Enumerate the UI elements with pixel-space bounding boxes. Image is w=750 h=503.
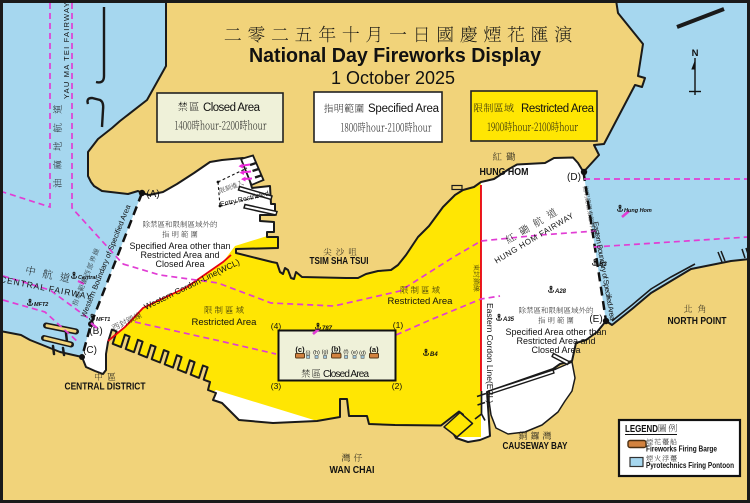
svg-text:Restricted Area: Restricted Area [521,103,595,115]
svg-text:(3): (3) [271,381,282,391]
svg-text:787: 787 [322,326,333,332]
svg-text:A35: A35 [502,317,515,323]
svg-text:(2): (2) [392,381,403,391]
svg-text:Pyrotechnics Firing Pontoon: Pyrotechnics Firing Pontoon [646,461,734,470]
svg-text:(h): (h) [313,350,320,356]
svg-text:MFT2: MFT2 [34,302,48,308]
svg-text:NORTH POINT: NORTH POINT [668,316,727,327]
svg-text:(E): (E) [589,314,602,325]
svg-text:B4: B4 [430,352,438,358]
svg-text:Fireworks Firing Barge: Fireworks Firing Barge [646,445,717,454]
svg-text:Restricted Area: Restricted Area [388,296,454,307]
svg-text:National Day Fireworks Display: National Day Fireworks Display [249,45,542,67]
svg-text:YAU MA TEI FAIRWAY: YAU MA TEI FAIRWAY [62,1,71,99]
svg-text:Closed Area: Closed Area [531,345,580,355]
svg-text:(e): (e) [351,350,358,356]
svg-text:(D): (D) [567,172,581,183]
svg-text:CENTRAL DISTRICT: CENTRAL DISTRICT [65,382,146,393]
svg-text:Closed Area: Closed Area [323,369,369,380]
svg-text:N: N [692,48,699,59]
svg-text:WAN CHAI: WAN CHAI [330,465,375,476]
svg-text:TSIM SHA TSUI: TSIM SHA TSUI [310,256,369,267]
svg-text:B3: B3 [599,262,607,268]
svg-text:Hung Hom: Hung Hom [624,208,652,214]
svg-text:(C): (C) [83,345,97,356]
svg-text:Closed Area: Closed Area [203,102,261,114]
svg-text:(f): (f) [343,350,348,356]
svg-text:(1): (1) [393,320,404,330]
svg-text:1 October 2025: 1 October 2025 [331,68,455,88]
svg-text:MFT1: MFT1 [96,317,110,323]
svg-text:CAUSEWAY BAY: CAUSEWAY BAY [503,441,568,452]
svg-text:Closed Area: Closed Area [155,259,204,269]
svg-text:Restricted Area: Restricted Area [192,317,258,328]
svg-text:HUNG HOM: HUNG HOM [480,166,529,178]
svg-text:Specified Area: Specified Area [368,103,440,115]
svg-text:Eastern Cordon Line(ECL): Eastern Cordon Line(ECL) [485,303,495,403]
svg-text:(a): (a) [369,345,379,354]
svg-text:(b): (b) [331,345,341,354]
svg-text:LEGEND: LEGEND [625,423,658,435]
svg-text:(A): (A) [146,189,159,200]
svg-text:(g): (g) [322,350,329,356]
svg-text:(4): (4) [271,321,282,331]
svg-text:A28: A28 [554,289,567,295]
svg-text:(c): (c) [295,345,305,354]
